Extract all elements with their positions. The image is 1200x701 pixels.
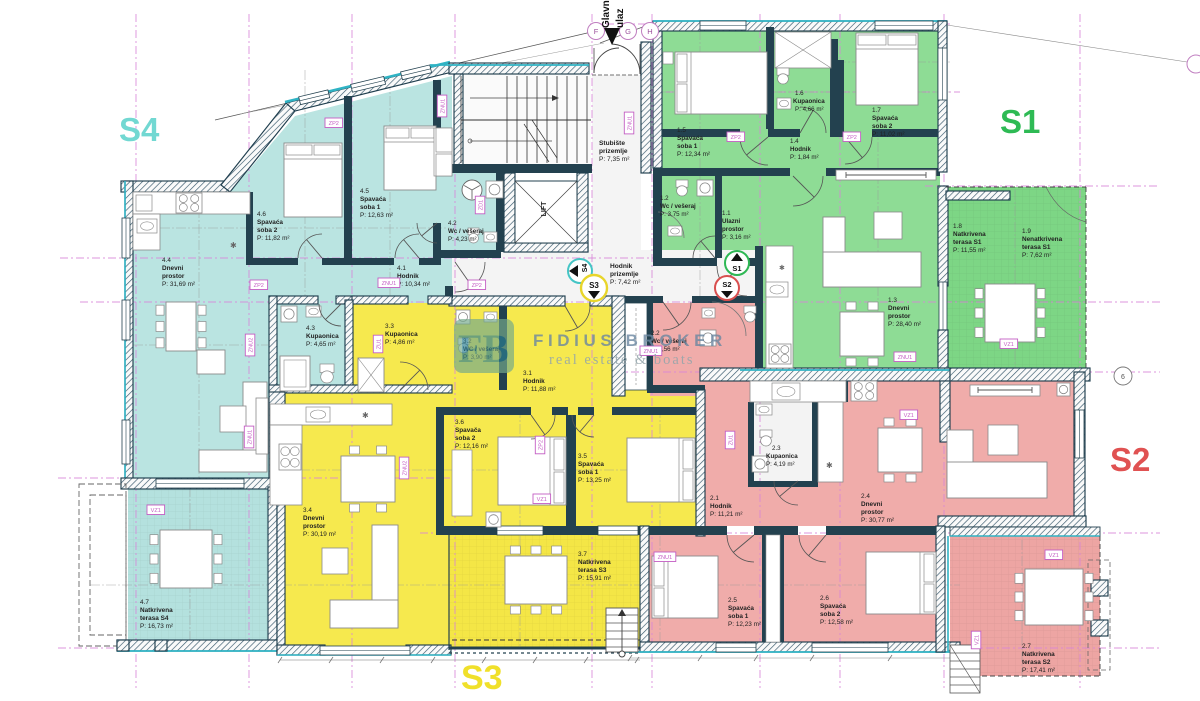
svg-text:P: 16,73 m²: P: 16,73 m² xyxy=(140,623,173,630)
svg-text:P: 10,34 m²: P: 10,34 m² xyxy=(397,281,430,288)
svg-text:Hodnik: Hodnik xyxy=(397,273,419,280)
svg-text:1.2: 1.2 xyxy=(660,195,669,202)
svg-text:ZNU2: ZNU2 xyxy=(402,461,408,476)
svg-text:2.5: 2.5 xyxy=(728,597,737,604)
svg-text:Natkrivena: Natkrivena xyxy=(578,559,611,566)
svg-text:P: 11,55 m²: P: 11,55 m² xyxy=(953,247,986,254)
svg-text:✱: ✱ xyxy=(779,264,785,272)
svg-text:P: 15,91 m²: P: 15,91 m² xyxy=(578,575,611,582)
svg-text:prostor: prostor xyxy=(722,226,744,233)
svg-text:1.9: 1.9 xyxy=(1022,228,1031,235)
svg-text:soba 1: soba 1 xyxy=(728,613,749,620)
svg-text:terasa S4: terasa S4 xyxy=(140,615,169,622)
svg-text:prizemlje: prizemlje xyxy=(599,148,628,155)
svg-text:VZ1: VZ1 xyxy=(1049,553,1059,559)
svg-text:P: 17,41 m²: P: 17,41 m² xyxy=(1022,667,1055,674)
svg-text:Dnevni: Dnevni xyxy=(888,305,910,312)
svg-text:Kupaonica: Kupaonica xyxy=(766,453,798,460)
svg-text:ZP2: ZP2 xyxy=(731,135,741,141)
svg-text:FB: FB xyxy=(458,326,509,371)
svg-text:3.6: 3.6 xyxy=(455,419,464,426)
svg-text:VZ1: VZ1 xyxy=(974,635,980,645)
svg-text:4.3: 4.3 xyxy=(306,325,315,332)
svg-text:P: 4,65 m²: P: 4,65 m² xyxy=(306,341,335,348)
svg-text:ZP2: ZP2 xyxy=(329,121,339,127)
svg-text:prostor: prostor xyxy=(162,273,185,280)
svg-text:Natkrivena: Natkrivena xyxy=(140,607,173,614)
svg-text:soba 1: soba 1 xyxy=(360,204,381,211)
svg-text:ZU1: ZU1 xyxy=(728,435,734,446)
svg-text:P: 11,82 m²: P: 11,82 m² xyxy=(257,235,290,242)
svg-text:Stubište: Stubište xyxy=(599,140,625,147)
svg-text:3.4: 3.4 xyxy=(303,507,312,514)
svg-text:P: 28,40 m²: P: 28,40 m² xyxy=(888,321,921,328)
svg-text:VZ1: VZ1 xyxy=(904,413,914,419)
svg-text:4.5: 4.5 xyxy=(360,188,369,195)
svg-text:3.5: 3.5 xyxy=(578,453,587,460)
svg-text:2.3: 2.3 xyxy=(772,445,781,452)
svg-text:ZP2: ZP2 xyxy=(254,283,264,289)
svg-text:Nenatkrivena: Nenatkrivena xyxy=(1022,236,1063,243)
svg-text:VZ1: VZ1 xyxy=(1004,342,1014,348)
svg-text:P: 12,23 m²: P: 12,23 m² xyxy=(728,621,761,628)
svg-text:4.6: 4.6 xyxy=(257,211,266,218)
svg-text:LIFT: LIFT xyxy=(541,201,548,216)
svg-text:P: 4,23 m²: P: 4,23 m² xyxy=(448,236,477,243)
svg-text:2.4: 2.4 xyxy=(861,493,870,500)
svg-text:Hodnik: Hodnik xyxy=(790,146,812,153)
svg-text:P: 12,34 m²: P: 12,34 m² xyxy=(677,151,710,158)
svg-text:P: 3,75 m²: P: 3,75 m² xyxy=(660,211,689,218)
svg-text:S4: S4 xyxy=(119,111,160,148)
svg-text:VZ1: VZ1 xyxy=(537,497,547,503)
svg-text:✱: ✱ xyxy=(230,241,237,250)
svg-text:ZNU1: ZNU1 xyxy=(440,99,446,114)
svg-text:soba 1: soba 1 xyxy=(677,143,698,150)
svg-text:ZD1: ZD1 xyxy=(478,200,484,211)
svg-text:6: 6 xyxy=(1121,374,1125,381)
svg-text:2.7: 2.7 xyxy=(1022,643,1031,650)
svg-text:Wc / vešeraj: Wc / vešeraj xyxy=(660,203,696,210)
svg-text:Dnevni: Dnevni xyxy=(861,501,883,508)
svg-text:P: 12,58 m²: P: 12,58 m² xyxy=(820,619,853,626)
svg-text:Spavaća: Spavaća xyxy=(872,115,898,122)
svg-text:4.7: 4.7 xyxy=(140,599,149,606)
svg-text:1.6: 1.6 xyxy=(795,90,804,97)
svg-text:P: 11,88 m²: P: 11,88 m² xyxy=(523,386,556,393)
svg-text:1.3: 1.3 xyxy=(888,297,897,304)
svg-text:Spavaća: Spavaća xyxy=(578,461,604,468)
svg-text:terasa S1: terasa S1 xyxy=(1022,244,1051,251)
svg-text:soba 2: soba 2 xyxy=(257,227,278,234)
svg-text:S1: S1 xyxy=(1000,103,1040,140)
svg-text:terasa S1: terasa S1 xyxy=(953,239,982,246)
svg-text:1.5: 1.5 xyxy=(677,127,686,134)
svg-text:prostor: prostor xyxy=(861,509,884,516)
svg-text:P: 4,66 m²: P: 4,66 m² xyxy=(795,106,824,113)
svg-text:ZU1: ZU1 xyxy=(376,339,382,350)
svg-text:2.1: 2.1 xyxy=(710,495,719,502)
svg-text:soba 1: soba 1 xyxy=(578,469,599,476)
svg-text:ZP2: ZP2 xyxy=(847,135,857,141)
svg-text:4.1: 4.1 xyxy=(397,265,406,272)
svg-text:P: 1,84 m²: P: 1,84 m² xyxy=(790,154,819,161)
svg-text:Spavača: Spavača xyxy=(455,427,481,434)
svg-text:S1: S1 xyxy=(732,264,741,273)
svg-text:soba 2: soba 2 xyxy=(820,611,841,618)
svg-text:Hodnik: Hodnik xyxy=(710,503,732,510)
svg-text:ZNU1: ZNU1 xyxy=(658,555,673,561)
svg-text:terasa S2: terasa S2 xyxy=(1022,659,1051,666)
svg-text:Wc / vešeraj: Wc / vešeraj xyxy=(448,228,484,235)
svg-text:ZNU2: ZNU2 xyxy=(248,338,254,353)
svg-text:H: H xyxy=(647,27,652,36)
svg-text:P: 11,21 m²: P: 11,21 m² xyxy=(710,511,743,518)
svg-text:prostor: prostor xyxy=(888,313,911,320)
svg-text:1.1: 1.1 xyxy=(722,210,731,217)
svg-text:P: 4,86 m²: P: 4,86 m² xyxy=(385,339,414,346)
svg-text:Spavaća: Spavaća xyxy=(360,196,386,203)
svg-text:Natkrivena: Natkrivena xyxy=(1022,651,1055,658)
svg-text:Natkrivena: Natkrivena xyxy=(953,231,986,238)
svg-text:ZNU1: ZNU1 xyxy=(627,116,633,131)
svg-text:P: 13,25 m²: P: 13,25 m² xyxy=(578,477,611,484)
svg-text:P: 30,19 m²: P: 30,19 m² xyxy=(303,531,336,538)
svg-text:3.3: 3.3 xyxy=(385,323,394,330)
svg-text:ZP2: ZP2 xyxy=(538,440,544,450)
svg-text:✱: ✱ xyxy=(826,461,833,470)
svg-text:ulaz: ulaz xyxy=(615,9,626,28)
svg-text:P: 31,69 m²: P: 31,69 m² xyxy=(162,281,195,288)
svg-text:Ulazni: Ulazni xyxy=(722,218,741,225)
svg-text:VZ1: VZ1 xyxy=(151,508,161,514)
svg-text:Hodnik: Hodnik xyxy=(610,263,633,270)
svg-text:S2: S2 xyxy=(1110,441,1150,478)
svg-text:P: 7,35 m²: P: 7,35 m² xyxy=(599,156,630,163)
svg-text:3.7: 3.7 xyxy=(578,551,587,558)
svg-text:Kupaonica: Kupaonica xyxy=(306,333,339,340)
svg-text:Spavaća: Spavaća xyxy=(820,603,846,610)
svg-text:Spavaća: Spavaća xyxy=(728,605,754,612)
svg-text:S2: S2 xyxy=(722,280,731,289)
svg-text:1.7: 1.7 xyxy=(872,107,881,114)
svg-text:✱: ✱ xyxy=(362,411,369,420)
svg-text:terasa S3: terasa S3 xyxy=(578,567,607,574)
svg-text:P: 11,02 m²: P: 11,02 m² xyxy=(872,131,905,138)
svg-text:1.8: 1.8 xyxy=(953,223,962,230)
svg-text:ZNU1: ZNU1 xyxy=(382,281,397,287)
svg-text:P: 12,16 m²: P: 12,16 m² xyxy=(455,443,488,450)
svg-text:P: 3,16 m²: P: 3,16 m² xyxy=(722,234,751,241)
svg-text:soba 2: soba 2 xyxy=(455,435,476,442)
svg-text:3.1: 3.1 xyxy=(523,370,532,377)
svg-text:Spavaća: Spavaća xyxy=(677,135,703,142)
svg-text:ZNU1: ZNU1 xyxy=(898,355,913,361)
svg-text:Spavaća: Spavaća xyxy=(257,219,283,226)
svg-text:Kupaonica: Kupaonica xyxy=(793,98,825,105)
svg-text:1.4: 1.4 xyxy=(790,138,799,145)
svg-text:P: 7,42 m²: P: 7,42 m² xyxy=(610,279,641,286)
svg-text:Dnevni: Dnevni xyxy=(303,515,325,522)
svg-text:prostor: prostor xyxy=(303,523,326,530)
svg-text:Dnevni: Dnevni xyxy=(162,265,184,272)
svg-text:F: F xyxy=(594,27,599,36)
svg-text:ZNU1: ZNU1 xyxy=(247,430,253,445)
svg-text:P: 4,19 m²: P: 4,19 m² xyxy=(766,461,795,468)
svg-text:Hodnik: Hodnik xyxy=(523,378,545,385)
svg-text:S4: S4 xyxy=(582,264,589,273)
svg-text:S3: S3 xyxy=(589,281,599,290)
svg-text:real estate & boats: real estate & boats xyxy=(549,352,695,368)
svg-text:P: 7,62 m²: P: 7,62 m² xyxy=(1022,252,1051,259)
svg-text:FIDIUS BROKER: FIDIUS BROKER xyxy=(533,331,727,350)
svg-text:4.2: 4.2 xyxy=(448,220,457,227)
svg-text:P: 30,77 m²: P: 30,77 m² xyxy=(861,517,894,524)
svg-text:P: 12,63 m²: P: 12,63 m² xyxy=(360,212,393,219)
svg-text:4.4: 4.4 xyxy=(162,257,171,264)
svg-text:2.6: 2.6 xyxy=(820,595,829,602)
svg-text:ZP2: ZP2 xyxy=(472,283,482,289)
svg-text:Kupaonica: Kupaonica xyxy=(385,331,418,338)
svg-text:soba 2: soba 2 xyxy=(872,123,893,130)
svg-text:prizemlje: prizemlje xyxy=(610,271,639,278)
svg-text:Glavni: Glavni xyxy=(601,0,612,28)
svg-text:S3: S3 xyxy=(461,659,503,696)
